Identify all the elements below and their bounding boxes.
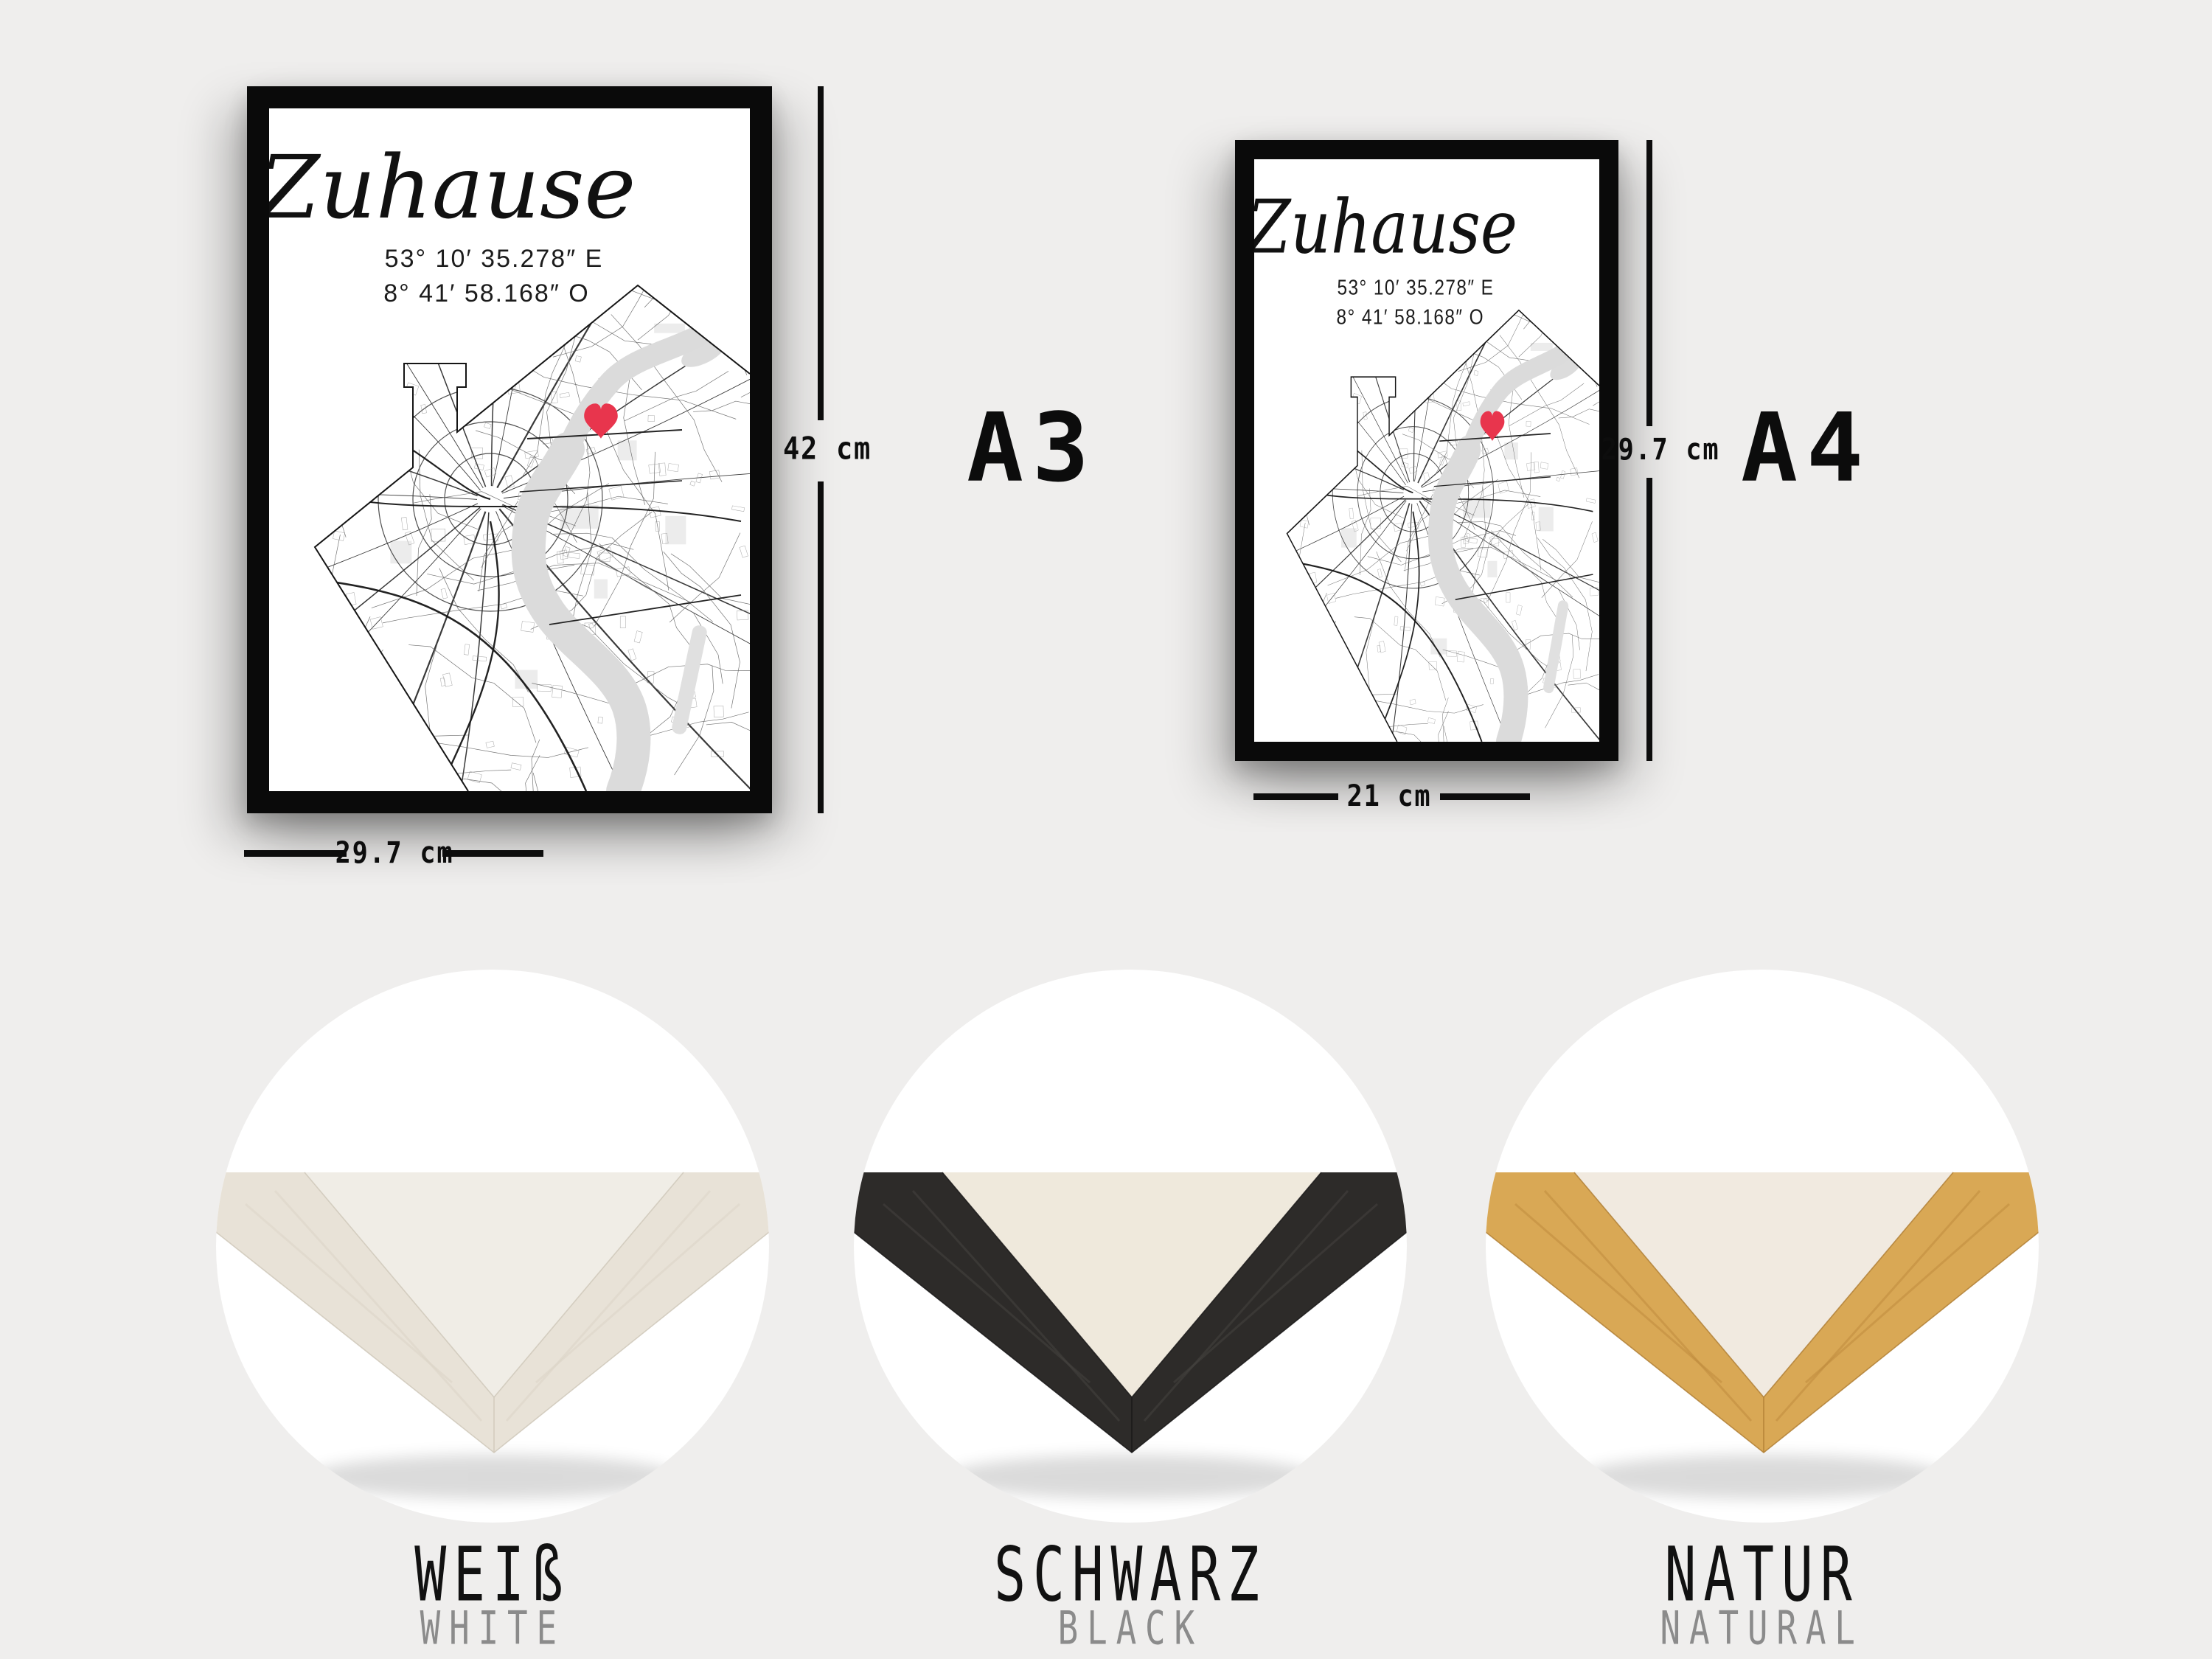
a4-size-label: A4 bbox=[1741, 394, 1872, 504]
a4-width-label: 21 cm bbox=[1347, 779, 1432, 813]
a4-height-line-bottom bbox=[1646, 478, 1652, 761]
a3-size-label: A3 bbox=[967, 394, 1098, 504]
poster-coordinates-line1: 53° 10′ 35.278″ E bbox=[1337, 275, 1494, 299]
a3-height-line-bottom bbox=[818, 481, 824, 813]
swatch-sublabel-natural: NATURAL bbox=[1430, 1601, 2094, 1655]
poster-title: Zuhause bbox=[269, 136, 636, 238]
a3-height-line-top bbox=[818, 86, 824, 420]
poster-coordinates-line2: 8° 41′ 58.168″ O bbox=[383, 279, 590, 307]
a3-width-label: 29.7 cm bbox=[335, 836, 454, 870]
poster-coordinates-line1: 53° 10′ 35.278″ E bbox=[385, 245, 604, 273]
swatch-sublabel-black: BLACK bbox=[799, 1601, 1462, 1655]
poster-art: Zuhause 53° 10′ 35.278″ E 8° 41′ 58.168″… bbox=[1254, 159, 1599, 742]
framed-poster-a4: Zuhause 53° 10′ 35.278″ E 8° 41′ 58.168″… bbox=[1235, 140, 1618, 761]
a3-width-line-right bbox=[442, 850, 543, 857]
poster-coordinates-line2: 8° 41′ 58.168″ O bbox=[1336, 305, 1484, 329]
a4-height-line-top bbox=[1646, 140, 1652, 426]
poster-paper-a3: Zuhause 53° 10′ 35.278″ E 8° 41′ 58.168″… bbox=[269, 108, 750, 791]
framed-poster-a3: Zuhause 53° 10′ 35.278″ E 8° 41′ 58.168″… bbox=[247, 86, 772, 813]
a4-width-line-left bbox=[1253, 793, 1338, 800]
a3-height-label: 42 cm bbox=[783, 431, 872, 467]
poster-paper-a4: Zuhause 53° 10′ 35.278″ E 8° 41′ 58.168″… bbox=[1254, 159, 1599, 742]
a3-width-line-left bbox=[244, 850, 347, 857]
swatch-sublabel-white: WHITE bbox=[161, 1601, 824, 1655]
a4-height-label: 29.7 cm bbox=[1601, 433, 1720, 467]
swatch-photo-black bbox=[854, 970, 1407, 1523]
a4-width-line-right bbox=[1440, 793, 1530, 800]
swatch-photo-white bbox=[216, 970, 769, 1523]
swatch-photo-natural bbox=[1486, 970, 2039, 1523]
product-gallery-image: Zuhause 53° 10′ 35.278″ E 8° 41′ 58.168″… bbox=[0, 0, 2212, 1659]
poster-title: Zuhause bbox=[1254, 184, 1517, 270]
poster-art: Zuhause 53° 10′ 35.278″ E 8° 41′ 58.168″… bbox=[269, 108, 750, 791]
